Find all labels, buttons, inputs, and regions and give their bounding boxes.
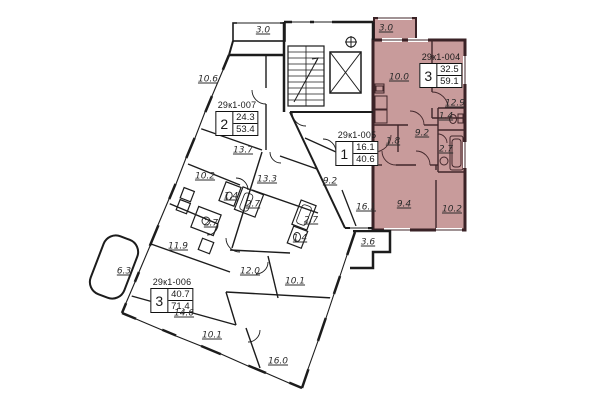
balcony-004: [374, 18, 416, 40]
toilet-icon: [294, 233, 301, 242]
wing-outline: [86, 55, 390, 388]
balcony-006: [86, 232, 142, 303]
apartment-004-highlight: [373, 18, 465, 230]
vent-shaft-icon: [180, 188, 194, 202]
apartment-005-walls: [287, 112, 373, 248]
toilet-icon: [225, 191, 233, 201]
stair-core: [284, 22, 373, 112]
floorplan-drawing: [0, 0, 600, 400]
floor-plan-stage: 29к1-007 2 24.3 53.4 29к1-005 1 16.1 40.…: [0, 0, 600, 400]
kitchen-unit-icon: [198, 238, 214, 254]
balcony-007: [229, 23, 285, 55]
apartment-004-outline: [373, 40, 465, 230]
wing-doors: [207, 90, 281, 342]
sanitary-cluster: [176, 182, 263, 254]
wing-inner-walls: [128, 55, 333, 368]
stair-treads: [288, 46, 324, 106]
balcony-005: [350, 231, 390, 268]
